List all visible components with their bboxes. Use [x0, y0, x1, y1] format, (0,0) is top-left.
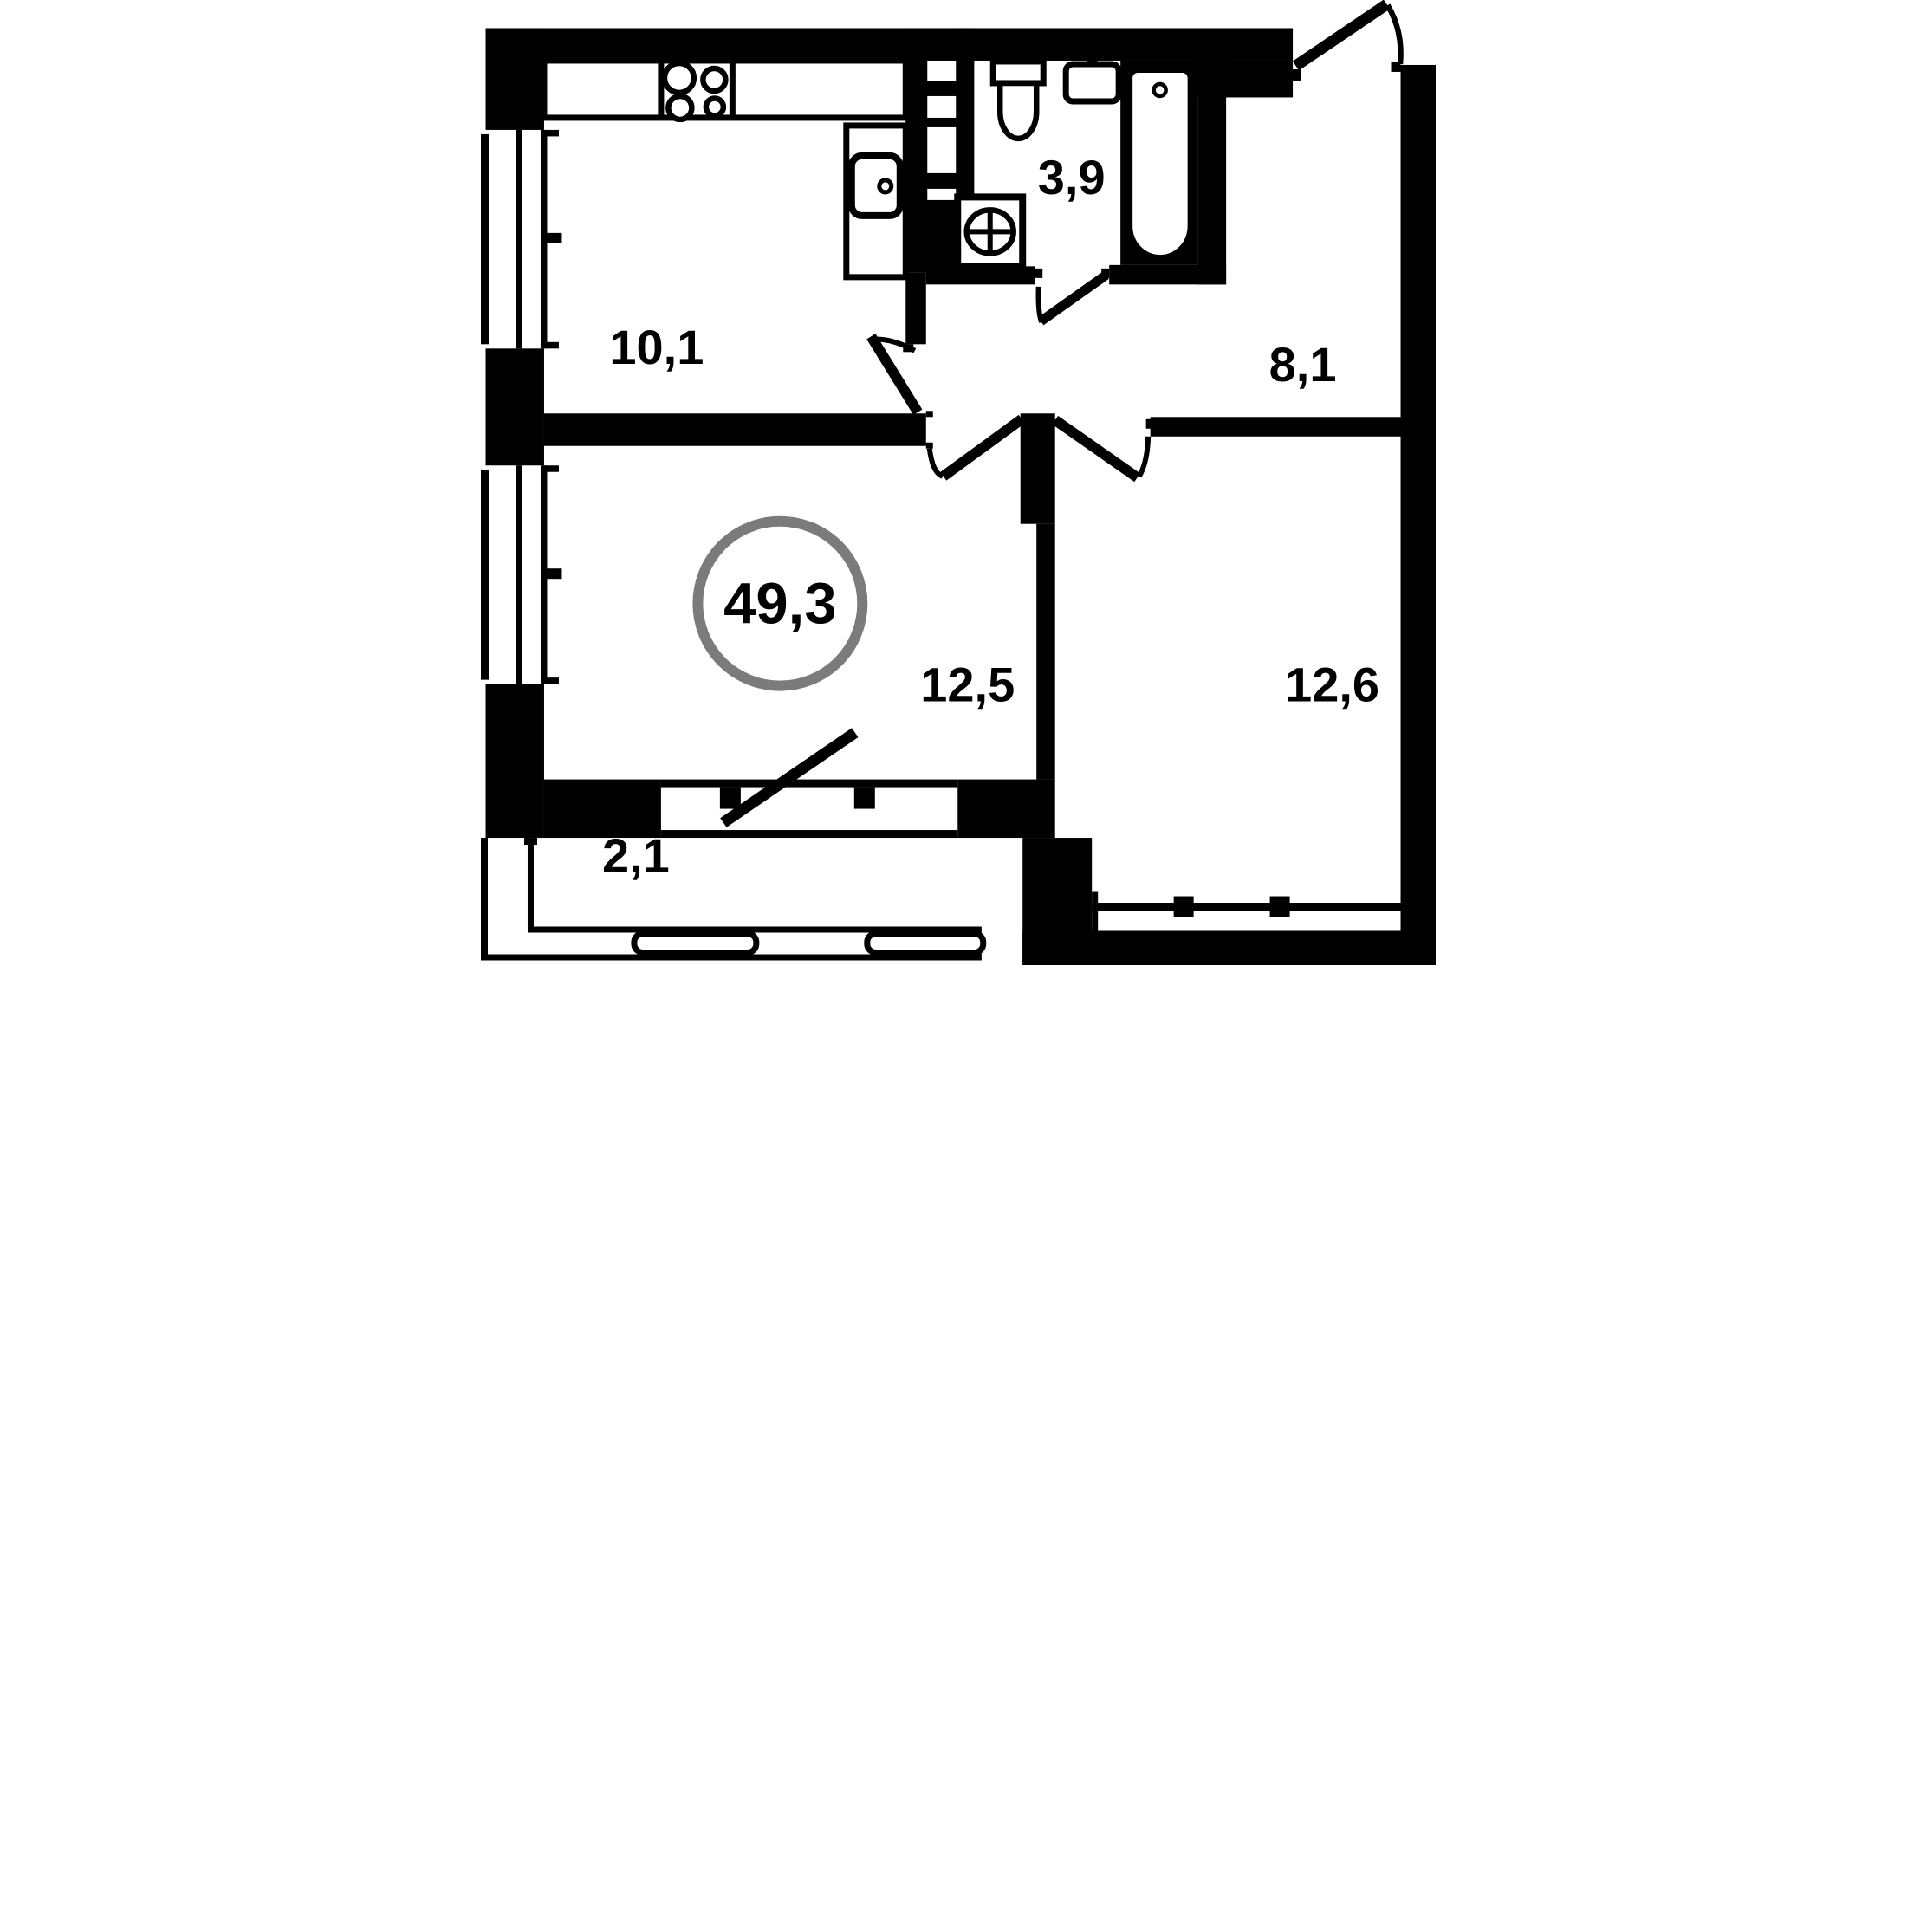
door-entry: [1295, 4, 1400, 66]
bay-post: [1269, 897, 1289, 917]
wall-kitchen-east-strip: [905, 273, 925, 344]
wall-bath-west: [957, 28, 974, 198]
window-jamb: [543, 342, 558, 348]
washbasin-icon: [1066, 55, 1119, 101]
door-room-b: [1054, 420, 1147, 477]
washing-machine-icon: [957, 197, 1022, 266]
kitchen-sink-icon: [851, 156, 899, 216]
wall-top: [485, 28, 1293, 60]
window-jamb: [543, 130, 558, 136]
wall-hall-stub: [1020, 413, 1054, 523]
jamb-entry-left: [1292, 69, 1301, 81]
room-label-room-a: 12,5: [920, 658, 1015, 712]
toilet-icon: [993, 62, 1043, 139]
door-entry-leaf: [1295, 4, 1386, 66]
balcony-glass-bar: [866, 934, 983, 953]
room-label-hallway: 8,1: [1268, 337, 1336, 392]
balcony-door-leaf: [723, 733, 854, 823]
window-outer-line: [481, 470, 489, 679]
wall-right: [1400, 65, 1435, 966]
bathtub-icon: [1120, 61, 1197, 265]
total-area-label: 49,3: [723, 572, 836, 637]
vent-cell: [927, 127, 956, 173]
window-frame-line: [540, 465, 546, 684]
wall-hall-south: [1150, 417, 1400, 436]
door-room-b-swing-arc: [1139, 437, 1147, 477]
vent-cell: [927, 61, 956, 81]
window-jamb: [543, 465, 558, 471]
wall-left-low: [485, 684, 543, 838]
band-bottom-line: [660, 830, 957, 838]
door-room-a: [929, 419, 1021, 477]
total-area-badge: 49,3: [697, 522, 862, 686]
window-outer-line: [481, 134, 489, 344]
jamb-kitchen-south-bottom: [925, 443, 932, 449]
balcony-outer-left: [481, 838, 488, 960]
window-room-a: [481, 465, 561, 684]
window-frame-line: [540, 130, 546, 348]
band-post: [719, 788, 740, 809]
door-entry-swing-arc: [1387, 5, 1400, 64]
window-frame-line: [515, 465, 521, 684]
bay-side-line: [1092, 892, 1098, 936]
door-room-b-leaf: [1054, 420, 1137, 477]
wall-room-divider: [1036, 524, 1054, 780]
jamb-hall-south: [1145, 419, 1154, 429]
wall-kitchen-south: [543, 413, 925, 445]
kitchen-counter: [543, 61, 905, 277]
bay-window-room-b: [1092, 892, 1400, 936]
balcony-glass-bar: [633, 934, 756, 953]
balcony-door-window-band: [660, 733, 957, 838]
bay-post: [1173, 897, 1193, 917]
wall-bottom-band: [1022, 931, 1436, 966]
walls: [485, 28, 1435, 965]
balcony-inner-cap: [523, 838, 536, 845]
room-label-bathroom: 3,9: [1037, 150, 1105, 204]
balcony-glazing: [481, 838, 983, 960]
door-room-a-leaf: [943, 419, 1021, 477]
room-label-kitchen: 10,1: [609, 320, 704, 374]
balcony-inner-left: [527, 841, 533, 930]
window-mullion: [547, 233, 561, 243]
wall-bath-east: [1197, 61, 1225, 284]
band-top-line: [660, 780, 957, 788]
window-jamb: [543, 677, 558, 684]
vent-cell: [927, 189, 956, 200]
wall-left-mid: [485, 348, 543, 465]
window-frame-line: [515, 130, 521, 348]
wall-left-top: [485, 28, 543, 129]
window-mullion: [547, 568, 561, 579]
bay-glass-line: [1092, 903, 1400, 911]
door-bathroom-leaf: [1041, 275, 1106, 321]
wall-balcony-band-right: [957, 780, 1054, 838]
room-label-balcony: 2,1: [602, 828, 670, 883]
floor-plan: 10,1 3,9 8,1 12,5 12,6 2,1 49,3: [479, 0, 1436, 965]
door-bathroom: [1038, 275, 1106, 321]
window-kitchen: [481, 130, 561, 348]
floor-plan-canvas: 10,1 3,9 8,1 12,5 12,6 2,1 49,3: [479, 0, 1436, 965]
door-bathroom-swing-arc: [1038, 287, 1041, 322]
vent-cell: [927, 96, 956, 118]
jamb-bath-left: [1035, 269, 1042, 278]
band-post: [853, 788, 874, 809]
room-label-room-b: 12,6: [1285, 658, 1379, 712]
door-kitchen: [871, 336, 918, 412]
jamb-kitchen-south-top: [925, 411, 932, 417]
